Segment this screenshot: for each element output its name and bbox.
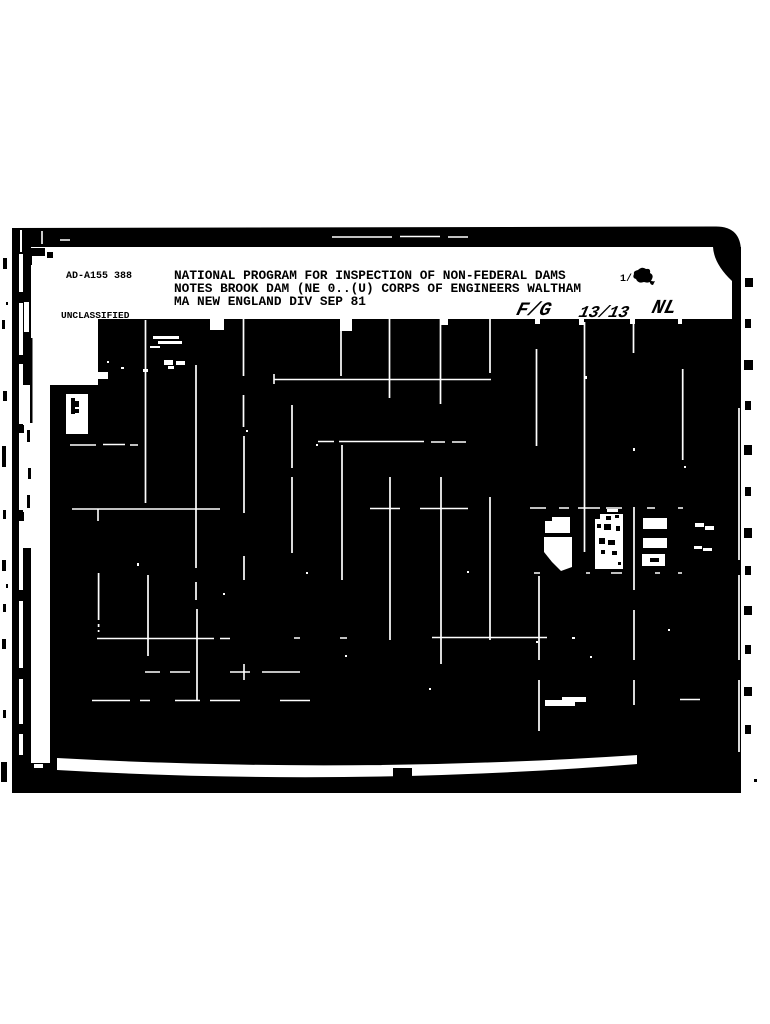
svg-text:MA NEW ENGLAND DIV SEP 81: MA NEW ENGLAND DIV SEP 81 bbox=[174, 294, 366, 309]
svg-text:1/: 1/ bbox=[620, 273, 632, 285]
svg-text:AD-A155 388: AD-A155 388 bbox=[66, 271, 132, 282]
svg-text:F/G: F/G bbox=[514, 299, 554, 321]
svg-text:UNCLASSIFIED: UNCLASSIFIED bbox=[61, 310, 130, 321]
svg-text:13/13: 13/13 bbox=[576, 304, 630, 323]
